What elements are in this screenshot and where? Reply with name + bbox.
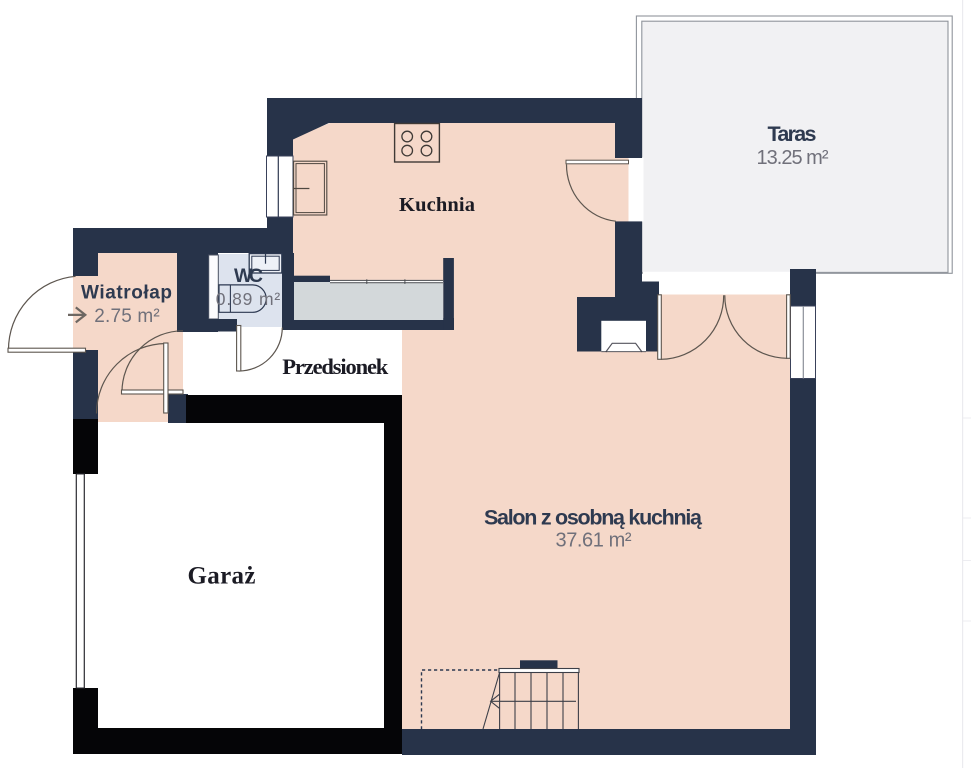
svg-text:Salon z osobną kuchnią: Salon z osobną kuchnią <box>484 506 703 530</box>
svg-text:37.61 m²: 37.61 m² <box>556 530 632 552</box>
svg-text:2.75 m²: 2.75 m² <box>94 306 160 327</box>
svg-text:Taras: Taras <box>768 122 817 146</box>
svg-text:WC: WC <box>234 265 263 287</box>
svg-text:Kuchnia: Kuchnia <box>399 194 475 216</box>
svg-text:Wiatrołap: Wiatrołap <box>81 283 172 304</box>
svg-text:13.25 m²: 13.25 m² <box>757 147 829 169</box>
svg-text:Przedsionek: Przedsionek <box>282 354 388 379</box>
svg-text:0.89 m²: 0.89 m² <box>216 289 281 309</box>
svg-text:Garaż: Garaż <box>188 563 256 590</box>
